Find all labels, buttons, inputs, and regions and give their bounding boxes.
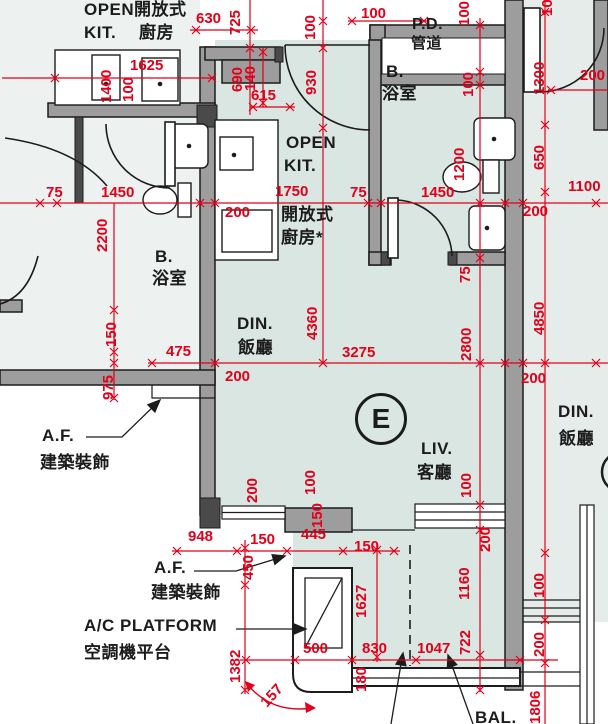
- toilet-left-tank: [178, 183, 191, 217]
- wall-right-edge-top: [594, 0, 608, 130]
- plan-drawing: [0, 0, 608, 724]
- pipe-duct-interior: [382, 38, 505, 74]
- unit-e-badge: E: [355, 393, 407, 445]
- wall-left-stub: [0, 300, 22, 312]
- wall-entry-top-b: [222, 60, 280, 83]
- appliance-left-2: [142, 58, 178, 101]
- leader-af-lower-arrow: [272, 555, 285, 565]
- hob-unit-e: [220, 137, 253, 170]
- toilet-e-bowl: [443, 162, 481, 192]
- wall-left-bottom: [0, 370, 215, 385]
- floor-plan: E OPENKIT.開放式廚房P.D.管道B.浴室OPENKIT.開放式廚房*B…: [0, 0, 608, 724]
- wall-unit-e-right: [505, 0, 523, 690]
- shower-dot: [492, 137, 495, 140]
- wall-liv-bottom-gray: [285, 508, 352, 532]
- cap-liv-wall-end: [200, 498, 220, 528]
- wall-bath-partition: [369, 40, 381, 265]
- appliance-dot: [104, 82, 107, 85]
- toilet-left-bowl: [143, 186, 177, 214]
- hob-dot: [232, 153, 235, 156]
- cap-entry-jamb: [275, 47, 283, 62]
- balcony-parapet: [343, 668, 520, 686]
- door-e-bath-leaf: [388, 198, 398, 258]
- window-liv-right: [415, 504, 505, 528]
- wall-entry-top-a: [205, 47, 280, 60]
- leader-af-lower: [194, 557, 282, 571]
- appliance-dot: [158, 82, 161, 85]
- sink-unit-e: [222, 210, 272, 252]
- door-right-unit-leaf: [524, 8, 540, 92]
- leader-af-upper: [86, 402, 158, 437]
- toilet-e-tank: [483, 160, 499, 193]
- door-left-unit-leaf: [165, 122, 175, 186]
- wall-bath-bottom-right: [450, 252, 505, 265]
- floor-unit-e: [215, 40, 505, 515]
- basin-e-dot: [485, 226, 488, 229]
- basin-dot: [187, 144, 190, 147]
